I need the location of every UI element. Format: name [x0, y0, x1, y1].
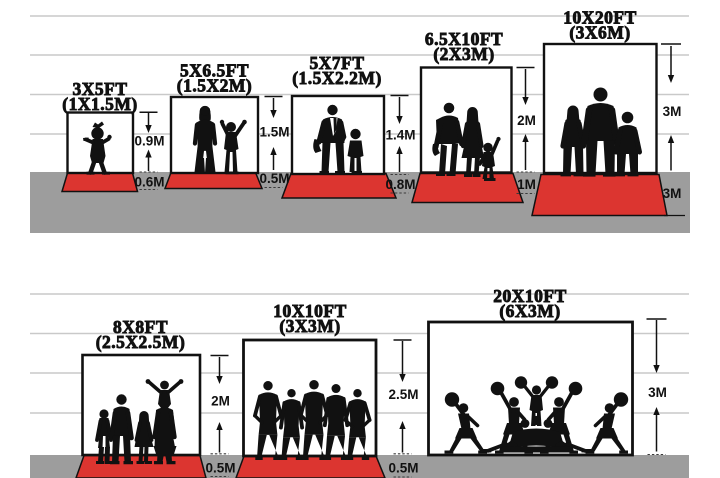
svg-text:1M: 1M — [517, 177, 536, 192]
svg-text:1.5M: 1.5M — [259, 125, 289, 140]
svg-text:(1X1.5M): (1X1.5M) — [62, 94, 137, 114]
svg-text:(2X3M): (2X3M) — [433, 44, 494, 64]
svg-text:2.5M: 2.5M — [388, 387, 418, 402]
svg-text:(3X6M): (3X6M) — [569, 23, 630, 43]
svg-text:3M: 3M — [663, 186, 682, 201]
svg-text:3M: 3M — [648, 385, 667, 400]
svg-text:1.4M: 1.4M — [385, 128, 415, 143]
svg-text:0.8M: 0.8M — [385, 177, 415, 192]
svg-text:3M: 3M — [663, 104, 682, 119]
svg-text:2M: 2M — [517, 113, 536, 128]
svg-text:0.5M: 0.5M — [205, 461, 235, 476]
svg-text:2M: 2M — [211, 394, 230, 409]
svg-text:(2.5X2.5M): (2.5X2.5M) — [96, 332, 186, 352]
svg-text:0.5M: 0.5M — [388, 461, 418, 476]
svg-text:0.5M: 0.5M — [259, 171, 289, 186]
svg-text:0.9M: 0.9M — [134, 134, 164, 149]
svg-text:(6X3M): (6X3M) — [499, 301, 560, 321]
svg-text:(1.5X2.2M): (1.5X2.2M) — [292, 68, 382, 88]
svg-text:(1.5X2M): (1.5X2M) — [177, 76, 252, 96]
svg-text:0.6M: 0.6M — [134, 175, 164, 190]
svg-text:(3X3M): (3X3M) — [279, 316, 340, 336]
